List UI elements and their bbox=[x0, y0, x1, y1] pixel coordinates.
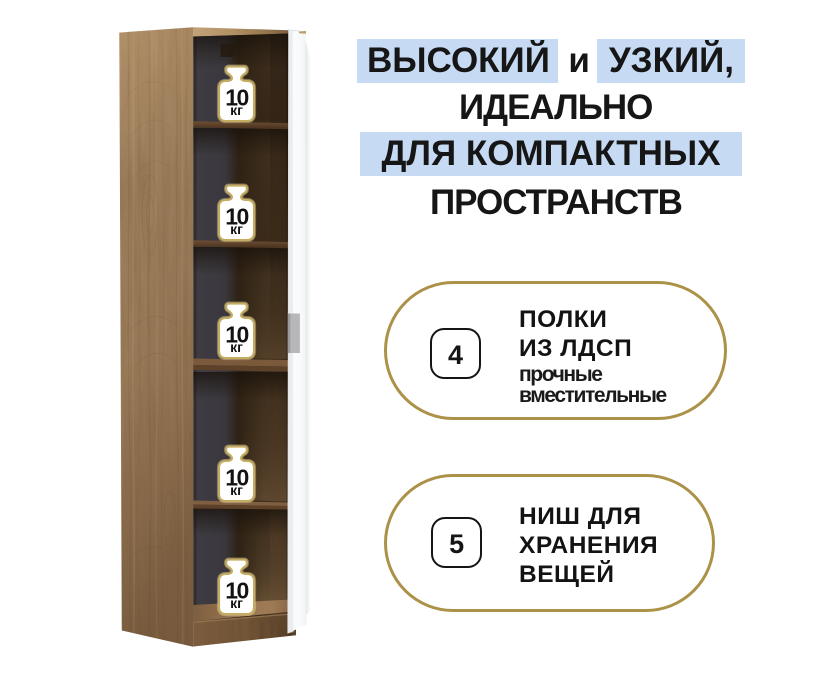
svg-text:кг: кг bbox=[230, 482, 243, 498]
svg-text:кг: кг bbox=[230, 221, 243, 237]
svg-text:кг: кг bbox=[230, 102, 243, 118]
svg-text:кг: кг bbox=[230, 339, 243, 355]
svg-text:кг: кг bbox=[230, 595, 243, 611]
